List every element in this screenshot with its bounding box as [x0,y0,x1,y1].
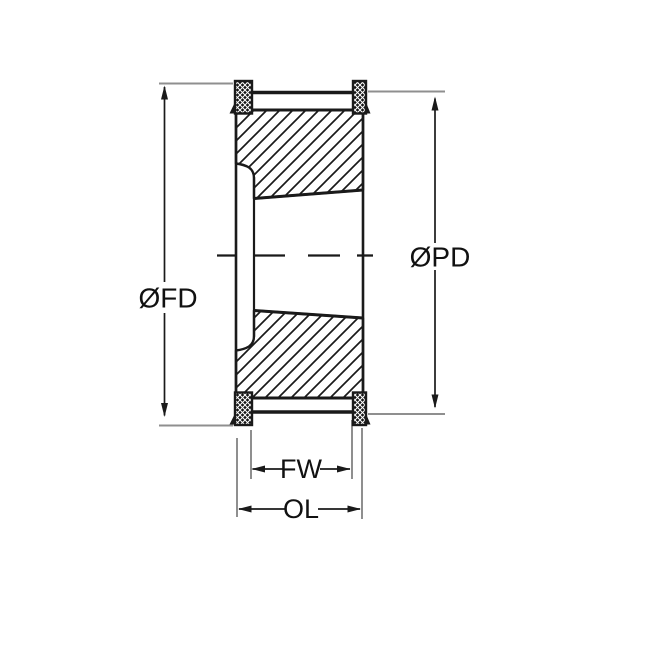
ol-label: OL [283,494,319,524]
drawing-canvas: ØFD ØPD FW OL [0,0,670,670]
flange-top-left [235,81,252,114]
flange-bottom-right [353,393,366,426]
pulley-technical-drawing: ØFD ØPD FW OL [0,0,670,670]
flange-bottom-left [235,393,252,426]
fw-label: FW [280,454,322,484]
fd-label: ØFD [138,283,197,314]
flange-top-right [353,81,366,114]
pd-label: ØPD [410,242,471,273]
